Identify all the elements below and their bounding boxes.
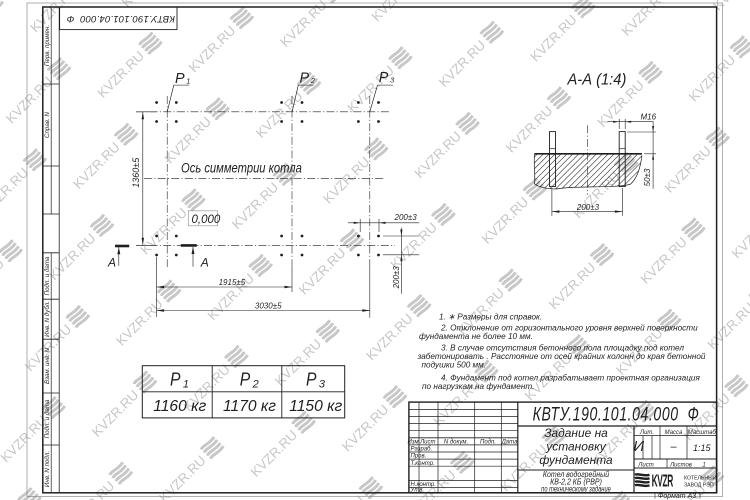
svg-text:Взам. инв. N: Взам. инв. N [44, 347, 51, 384]
svg-text:Изм.: Изм. [408, 439, 421, 445]
svg-text:установку: установку [545, 439, 606, 453]
svg-text:Р: Р [240, 368, 251, 390]
svg-text:1170 кг: 1170 кг [223, 398, 276, 415]
svg-text:КВТУ.190.101.04.000 Ф: КВТУ.190.101.04.000 Ф [533, 403, 700, 425]
svg-text:200±3: 200±3 [392, 266, 401, 290]
svg-text:по нагрузкам на фундамент.: по нагрузкам на фундамент. [422, 381, 534, 391]
svg-text:Перв. примен.: Перв. примен. [44, 25, 51, 66]
svg-text:N докум.: N докум. [444, 439, 468, 445]
svg-text:200±3: 200±3 [394, 213, 418, 222]
svg-text:200±3: 200±3 [576, 203, 600, 212]
svg-text:Задание на: Задание на [544, 426, 608, 440]
svg-text:Подп. и дата: Подп. и дата [44, 399, 51, 438]
svg-text:2: 2 [310, 76, 316, 85]
svg-text:И: И [633, 438, 644, 455]
svg-text:Масштаб: Масштаб [688, 430, 717, 436]
svg-text:подушки 500 мм.: подушки 500 мм. [422, 359, 487, 369]
svg-text:по техническому задание: по техническому задание [541, 485, 611, 494]
svg-text:Лист: Лист [419, 439, 435, 445]
svg-text:1:15: 1:15 [693, 443, 712, 453]
svg-text:1: 1 [702, 462, 705, 468]
svg-text:М16: М16 [641, 113, 657, 122]
svg-text:Формат А3: Формат А3 [658, 493, 696, 500]
svg-text:–: – [669, 441, 677, 453]
svg-text:3: 3 [319, 379, 326, 391]
svg-text:КВТУ.190.101.04.000 Ф: КВТУ.190.101.04.000 Ф [66, 13, 175, 24]
svg-text:А: А [107, 256, 116, 270]
svg-text:Инв. N подл.: Инв. N подл. [44, 451, 51, 487]
svg-text:0,000: 0,000 [192, 214, 221, 226]
svg-text:А: А [200, 256, 209, 270]
svg-text:50±3: 50±3 [643, 168, 652, 186]
svg-text:Справ. N: Справ. N [44, 112, 51, 138]
svg-text:3030±5: 3030±5 [255, 302, 282, 311]
svg-text:Инв. N дубл.: Инв. N дубл. [44, 301, 51, 337]
svg-text:Листов: Листов [669, 462, 692, 468]
svg-text:1160 кг: 1160 кг [153, 398, 206, 415]
svg-text:Лист: Лист [637, 462, 653, 468]
svg-text:KVZR: KVZR [652, 471, 674, 490]
svg-text:Р: Р [170, 368, 181, 390]
svg-text:1150 кг: 1150 кг [289, 398, 342, 415]
svg-text:Подп.: Подп. [480, 439, 496, 445]
svg-text:Разраб.: Разраб. [411, 447, 433, 453]
svg-text:Р: Р [306, 368, 317, 390]
svg-text:1915±5: 1915±5 [219, 278, 246, 287]
svg-text:Утв.: Утв. [410, 488, 425, 494]
svg-text:Лит.: Лит. [639, 430, 654, 436]
svg-text:Р: Р [300, 71, 310, 87]
svg-text:Подп. и дата: Подп. и дата [44, 256, 51, 295]
svg-text:2: 2 [252, 379, 259, 391]
svg-text:фундамента: фундамента [539, 453, 613, 467]
svg-text:Пров.: Пров. [411, 454, 427, 460]
svg-text:Р: Р [175, 71, 185, 87]
svg-text:фундамента не более 10 мм.: фундамента не более 10 мм. [419, 331, 533, 341]
svg-text:1360±5: 1360±5 [131, 157, 141, 188]
svg-text:Р: Р [379, 70, 389, 86]
svg-text:А-А (1:4): А-А (1:4) [567, 71, 627, 89]
svg-text:1. ∗ Размеры для справок.: 1. ∗ Размеры для справок. [439, 311, 542, 321]
svg-text:1: 1 [183, 379, 189, 391]
svg-text:1: 1 [186, 77, 190, 86]
svg-text:Ось симметрии котла: Ось симметрии котла [181, 159, 302, 176]
svg-text:КОТЕЛЬНЫЙ: КОТЕЛЬНЫЙ [684, 474, 717, 482]
svg-text:ЗАВОД РЭП: ЗАВОД РЭП [684, 483, 714, 489]
svg-text:Дата: Дата [501, 439, 518, 445]
svg-text:Масса: Масса [665, 430, 683, 436]
svg-text:Т.контр.: Т.контр. [411, 461, 435, 467]
